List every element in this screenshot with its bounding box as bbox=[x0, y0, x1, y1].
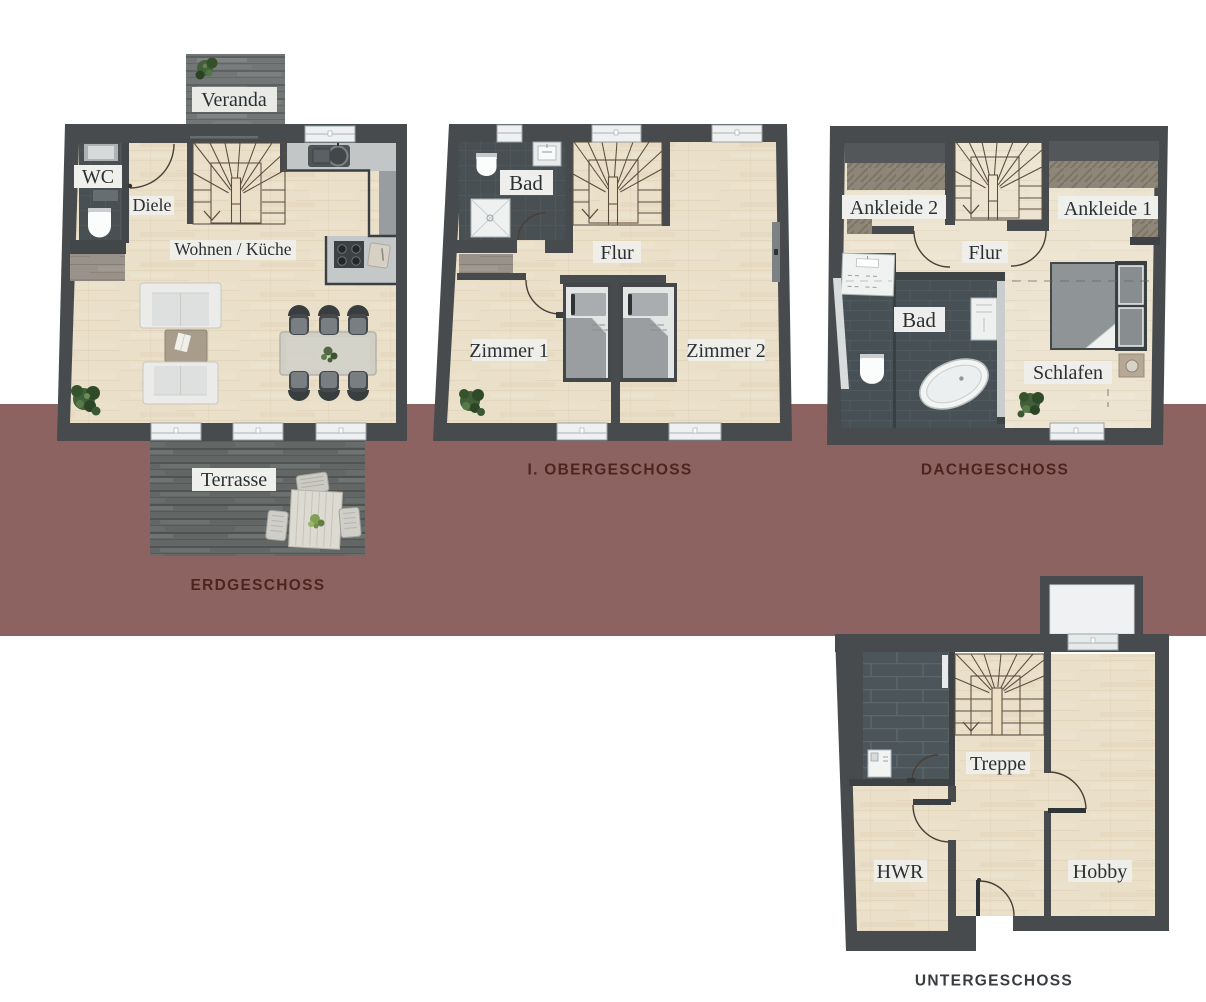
svg-text:DACHGESCHOSS: DACHGESCHOSS bbox=[921, 462, 1069, 479]
svg-text:WC: WC bbox=[82, 166, 114, 188]
svg-text:Hobby: Hobby bbox=[1073, 861, 1127, 883]
svg-text:HWR: HWR bbox=[877, 861, 924, 883]
svg-text:Ankleide 1: Ankleide 1 bbox=[1064, 198, 1152, 220]
svg-text:Treppe: Treppe bbox=[970, 753, 1026, 775]
svg-text:Zimmer 1: Zimmer 1 bbox=[469, 340, 548, 362]
svg-text:Bad: Bad bbox=[902, 308, 936, 332]
svg-text:ERDGESCHOSS: ERDGESCHOSS bbox=[191, 577, 326, 594]
svg-text:Wohnen / Küche: Wohnen / Küche bbox=[174, 239, 291, 259]
svg-text:Terrasse: Terrasse bbox=[201, 469, 267, 491]
svg-text:Schlafen: Schlafen bbox=[1033, 362, 1103, 384]
svg-text:UNTERGESCHOSS: UNTERGESCHOSS bbox=[915, 973, 1073, 990]
svg-text:Flur: Flur bbox=[968, 242, 1002, 264]
svg-text:Flur: Flur bbox=[600, 242, 634, 264]
svg-text:Bad: Bad bbox=[509, 171, 543, 195]
svg-text:Veranda: Veranda bbox=[201, 89, 267, 111]
svg-text:I. OBERGESCHOSS: I. OBERGESCHOSS bbox=[527, 462, 692, 479]
svg-text:Zimmer 2: Zimmer 2 bbox=[686, 340, 765, 362]
svg-text:Diele: Diele bbox=[133, 195, 172, 215]
svg-text:Ankleide 2: Ankleide 2 bbox=[850, 197, 938, 219]
